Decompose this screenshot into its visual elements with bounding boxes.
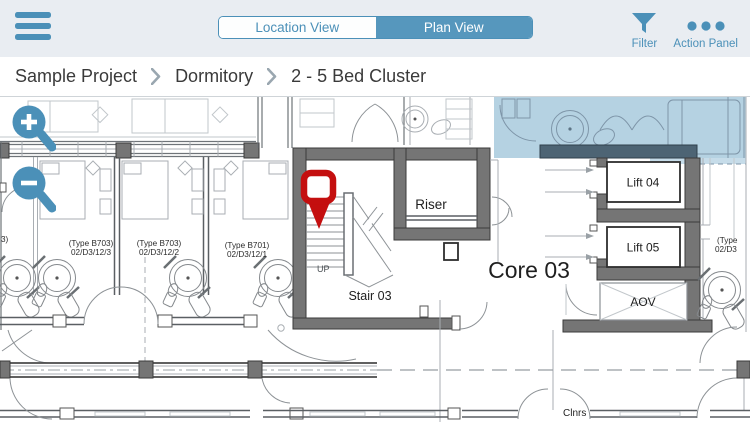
cleaners-label: Clnrs: [563, 408, 586, 419]
unit-label-partial-right: (Type 02/D3: [715, 236, 738, 254]
svg-text:02/D3/12/1: 02/D3/12/1: [227, 250, 268, 259]
column: [737, 361, 750, 378]
column: [0, 361, 10, 378]
floorplan-viewport[interactable]: Riser UP Stair 03 Core 03 Lift 04 Lift 0…: [0, 97, 750, 422]
filter-button[interactable]: Filter: [631, 6, 657, 50]
column: [139, 361, 153, 378]
location-pin[interactable]: [304, 173, 333, 229]
core-label: Core 03: [488, 257, 570, 283]
wall-under-highlight: [540, 145, 697, 158]
chevron-right-icon: [151, 68, 161, 85]
column: [244, 143, 259, 158]
highlighted-room[interactable]: [494, 97, 746, 164]
svg-text:(Type B701): (Type B701): [225, 241, 270, 250]
unit-label: (Type B703) 02/D3/12/2: [137, 239, 182, 257]
action-panel-button[interactable]: Action Panel: [673, 6, 738, 50]
lower-rooms: [0, 378, 750, 419]
lift04-label: Lift 04: [627, 176, 660, 190]
svg-text:02/D3/12/2: 02/D3/12/2: [139, 248, 180, 257]
tab-plan-view[interactable]: Plan View: [376, 17, 533, 38]
svg-text:02/D3: 02/D3: [715, 245, 737, 254]
filter-funnel-icon: [631, 13, 657, 35]
chevron-right-icon: [267, 68, 277, 85]
svg-text:(Type B703): (Type B703): [69, 239, 114, 248]
magnifier-handle: [41, 134, 52, 147]
hamburger-menu-icon[interactable]: [15, 12, 51, 45]
corridor: [0, 361, 750, 378]
breadcrumb-project[interactable]: Sample Project: [15, 66, 137, 87]
stair-label: Stair 03: [348, 289, 391, 303]
zoom-in-button[interactable]: [8, 103, 56, 153]
action-panel-label: Action Panel: [673, 38, 738, 50]
core-area: [440, 160, 553, 422]
view-segmented-control: Location View Plan View: [218, 16, 533, 39]
magnifier-handle: [41, 195, 52, 208]
unit-label: (Type B703) 02/D3/12/3: [69, 239, 114, 257]
riser-label: Riser: [415, 197, 447, 212]
breadcrumb: Sample Project Dormitory 2 - 5 Bed Clust…: [0, 57, 750, 97]
lift05-label: Lift 05: [627, 241, 660, 255]
column: [116, 143, 131, 158]
zoom-out-button[interactable]: [8, 164, 56, 214]
plan-canvas[interactable]: Riser UP Stair 03 Core 03 Lift 04 Lift 0…: [0, 97, 750, 422]
unit-label-partial-left: 3): [1, 235, 9, 244]
breadcrumb-building[interactable]: Dormitory: [175, 66, 253, 87]
bathroom-pod: [163, 256, 213, 319]
column: [248, 361, 262, 378]
filter-label: Filter: [632, 38, 658, 50]
top-toolbar: Location View Plan View Filter Action Pa…: [0, 0, 750, 57]
tab-location-view[interactable]: Location View: [219, 17, 376, 38]
up-label: UP: [317, 264, 330, 274]
svg-text:(Type: (Type: [717, 236, 738, 245]
unit-label: (Type B701) 02/D3/12/1: [225, 241, 270, 259]
breadcrumb-level[interactable]: 2 - 5 Bed Cluster: [291, 66, 426, 87]
svg-text:02/D3/12/3: 02/D3/12/3: [71, 248, 112, 257]
upper-core-linework: [258, 97, 472, 148]
aov-label: AOV: [630, 295, 655, 309]
svg-text:(Type B703): (Type B703): [137, 239, 182, 248]
ellipsis-icon: [685, 13, 727, 35]
